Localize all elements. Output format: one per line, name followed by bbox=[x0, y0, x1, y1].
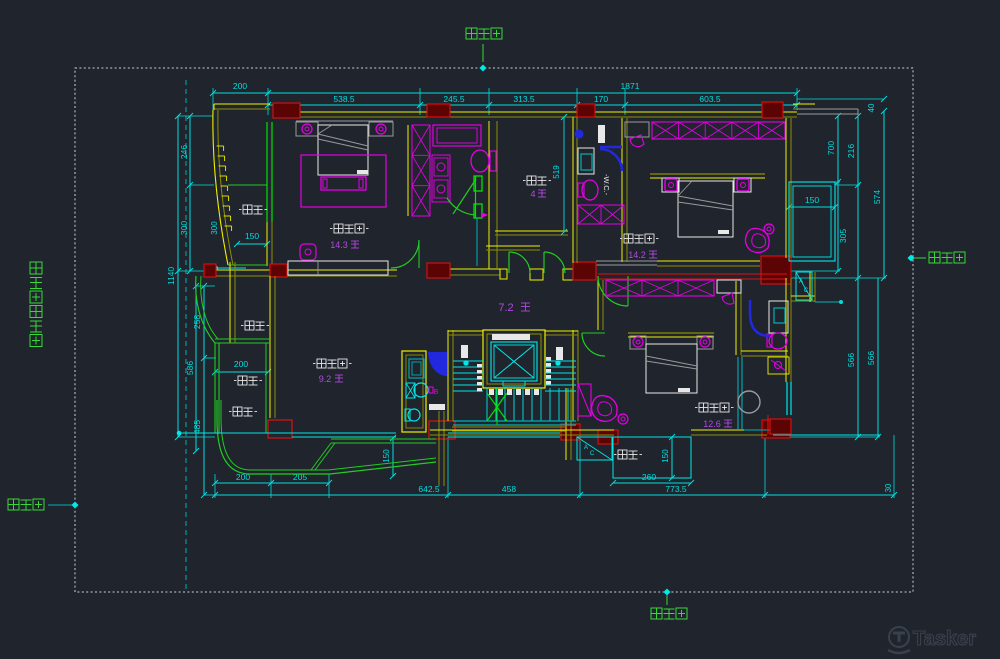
svg-text:12.6: 12.6 bbox=[703, 419, 721, 429]
svg-text:216: 216 bbox=[846, 144, 856, 158]
svg-text:C: C bbox=[590, 451, 595, 457]
svg-text:700: 700 bbox=[826, 141, 836, 155]
svg-text:200: 200 bbox=[234, 359, 248, 369]
svg-text:7.2: 7.2 bbox=[498, 302, 513, 314]
svg-text:1871: 1871 bbox=[621, 81, 640, 91]
svg-text:458: 458 bbox=[502, 484, 516, 494]
svg-text:485: 485 bbox=[192, 420, 202, 434]
svg-text:773.5: 773.5 bbox=[665, 484, 687, 494]
svg-text:30: 30 bbox=[884, 483, 893, 492]
svg-text:40: 40 bbox=[867, 103, 876, 112]
svg-text:150: 150 bbox=[805, 195, 819, 205]
svg-text:519: 519 bbox=[552, 165, 561, 179]
svg-text:-W.C.-: -W.C.- bbox=[602, 174, 611, 196]
svg-text:150: 150 bbox=[382, 449, 391, 463]
svg-text:642.5: 642.5 bbox=[418, 484, 440, 494]
svg-text:305: 305 bbox=[838, 229, 848, 243]
svg-text:1140: 1140 bbox=[166, 267, 176, 286]
svg-text:300: 300 bbox=[210, 221, 219, 235]
svg-text:300: 300 bbox=[179, 221, 189, 235]
svg-text:603.5: 603.5 bbox=[699, 94, 721, 104]
svg-text:260: 260 bbox=[642, 472, 656, 482]
svg-text:538.5: 538.5 bbox=[333, 94, 355, 104]
svg-text:A: A bbox=[584, 445, 588, 451]
svg-text:A: A bbox=[799, 279, 803, 285]
svg-text:313.5: 313.5 bbox=[513, 94, 535, 104]
svg-text:200: 200 bbox=[233, 81, 247, 91]
svg-text:150: 150 bbox=[661, 449, 670, 463]
svg-text:150: 150 bbox=[245, 231, 259, 241]
svg-text:14.3: 14.3 bbox=[330, 240, 348, 250]
svg-text:C: C bbox=[804, 288, 809, 294]
svg-text:574: 574 bbox=[872, 190, 882, 204]
svg-text:566: 566 bbox=[866, 351, 876, 365]
svg-text:14.2: 14.2 bbox=[628, 250, 646, 260]
svg-text:4: 4 bbox=[530, 189, 535, 199]
svg-text:9.2: 9.2 bbox=[319, 374, 332, 384]
svg-text:Tasker: Tasker bbox=[913, 628, 976, 650]
svg-text:245.5: 245.5 bbox=[443, 94, 465, 104]
svg-text:246: 246 bbox=[179, 145, 189, 159]
svg-text:586: 586 bbox=[185, 361, 195, 375]
svg-text:566: 566 bbox=[846, 353, 856, 367]
svg-text:170: 170 bbox=[594, 94, 608, 104]
svg-text:B: B bbox=[434, 389, 439, 396]
